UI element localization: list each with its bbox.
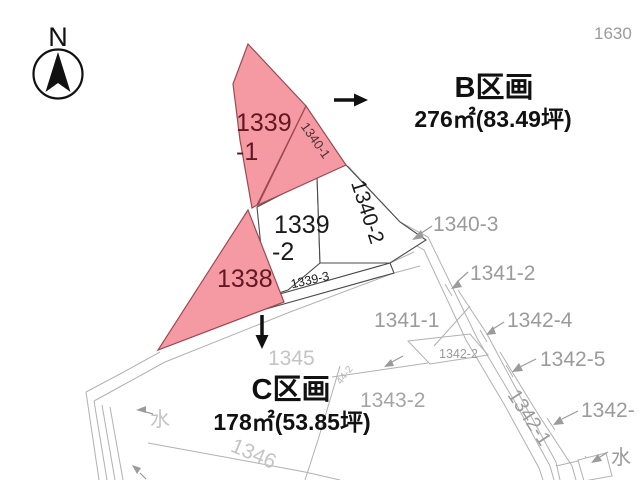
parcel-label-1339-1-line1: 1339 — [236, 109, 292, 137]
arrow-right-icon — [354, 94, 368, 107]
parcel-label-1342-cut: 1342- — [581, 399, 635, 422]
section-c-area: 178㎡(53.85坪) — [213, 409, 370, 435]
parcel-label-1341-2: 1341-2 — [470, 262, 535, 285]
pointer-arrow-icon — [132, 465, 141, 474]
pointer-arrow-icon — [512, 363, 523, 372]
pointer-arrow-icon — [384, 359, 394, 367]
parcel-label-1339-2-line1: 1339 — [274, 211, 330, 239]
parcel-label-1342-5: 1342-5 — [540, 348, 605, 371]
parcel-label-1339-2-line2: -2 — [272, 238, 294, 266]
compass-north-label: N — [48, 22, 68, 52]
parcel-label-1630: 1630 — [594, 24, 632, 43]
parcel-label-1339-1-line2: -1 — [236, 138, 258, 166]
pointer-arrow-icon — [136, 406, 146, 413]
parcel-label-1342-4: 1342-4 — [507, 309, 573, 332]
parcel-label-1340-3: 1340-3 — [433, 213, 498, 236]
parcel-label-1338: 1338 — [217, 265, 273, 293]
parcel-label-1346: 1346 — [228, 434, 280, 473]
pointer-arrow-icon — [451, 280, 462, 289]
cadastral-map: 1345 1346 水 44-2 1630 1340-3 1341-2 1341… — [0, 0, 640, 480]
pointer-arrow-icon — [553, 416, 564, 425]
water-label-left: 水 — [150, 408, 170, 431]
road-label-1342-1: 1342-1 — [503, 386, 555, 450]
section-b-title: B区画 — [455, 72, 534, 104]
parcel-label-1345: 1345 — [268, 347, 315, 370]
section-c-title: C区画 — [252, 374, 331, 406]
section-b-area: 276㎡(83.49坪) — [414, 106, 571, 132]
north-compass-icon: N — [34, 22, 83, 99]
water-box-outline — [578, 453, 612, 480]
parcel-label-44-2: 44-2 — [335, 364, 356, 387]
arrow-down-icon — [256, 335, 269, 349]
section-b-callout: B区画 276㎡(83.49坪) — [334, 72, 572, 132]
parcel-label-1341-1: 1341-1 — [374, 309, 439, 332]
parcel-label-1342-2: 1342-2 — [439, 347, 478, 361]
water-label-right: 水 — [611, 446, 631, 469]
compass-needle — [46, 52, 71, 92]
